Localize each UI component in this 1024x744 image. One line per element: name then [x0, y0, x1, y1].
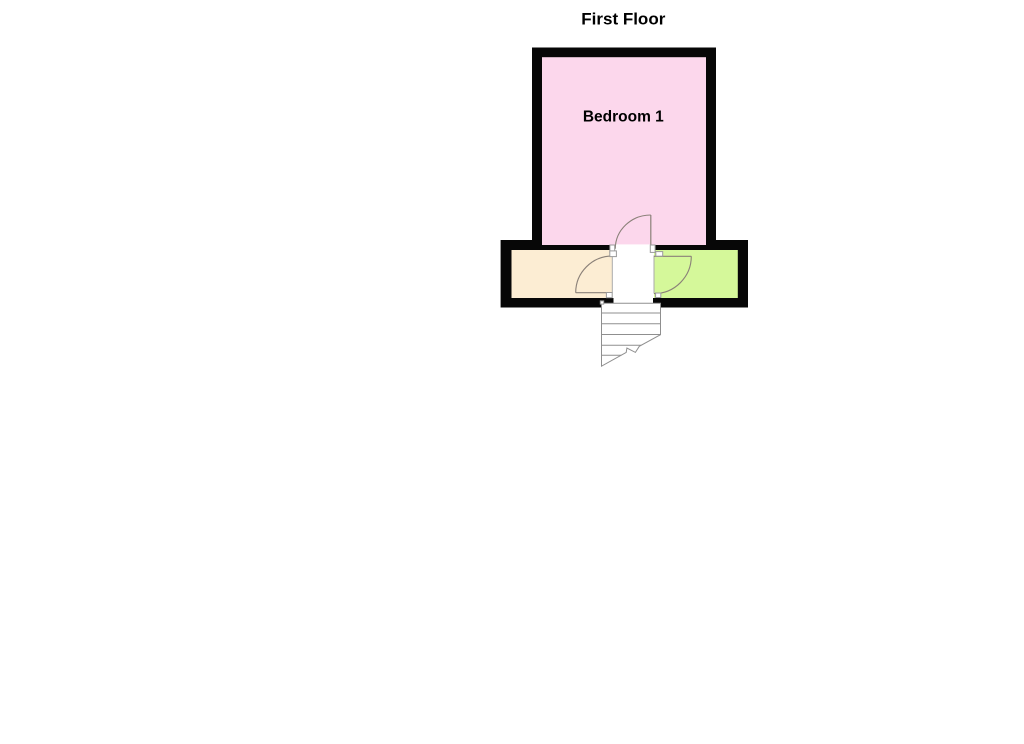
svg-text:Bedroom 1: Bedroom 1 — [583, 108, 664, 125]
svg-text:First Floor: First Floor — [581, 9, 665, 28]
